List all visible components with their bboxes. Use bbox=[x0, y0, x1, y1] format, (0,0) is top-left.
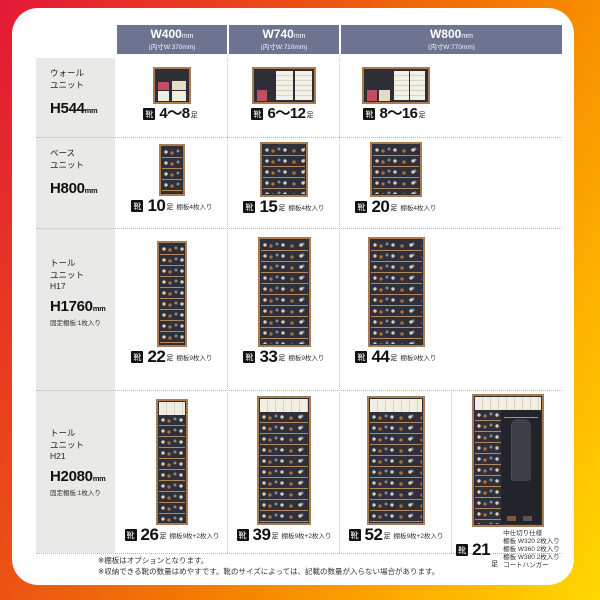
shoe-count: 20 bbox=[371, 200, 389, 214]
shelf-texture bbox=[370, 412, 422, 522]
cabinet-illustration bbox=[258, 237, 311, 347]
shoe-count: 22 bbox=[147, 350, 165, 364]
capacity-label: 靴 26 足 棚板9枚+2枚入り bbox=[125, 528, 220, 542]
shoe-count: 39 bbox=[253, 528, 271, 542]
pairs-unit: 足 bbox=[419, 110, 426, 121]
unit-height: H1760mm bbox=[50, 298, 120, 315]
pairs-unit: 足 bbox=[278, 203, 285, 214]
cabinet-illustration bbox=[368, 237, 425, 347]
shoe-count: 15 bbox=[259, 200, 277, 214]
shelf-texture bbox=[160, 244, 184, 344]
cell-wall-w400: 靴 4〜8 足 bbox=[117, 58, 227, 139]
row-label-tall-unit-h21: トール ユニット H21 H2080mm 固定棚板:1枚入り bbox=[50, 428, 120, 497]
capacity-label: 靴 44 足 棚板9枚入り bbox=[355, 350, 436, 364]
cell-tall21-w800: 靴 52 足 棚板9枚+2枚入り bbox=[341, 392, 451, 553]
shoe-icon: 靴 bbox=[237, 529, 249, 541]
shoe-box-stack bbox=[276, 71, 293, 100]
cabinet-illustration bbox=[156, 399, 188, 525]
inner-width-label: (内寸W:770mm) bbox=[341, 43, 562, 52]
inner-width-label: (内寸W:710mm) bbox=[229, 43, 339, 52]
shoe-icon: 靴 bbox=[355, 201, 367, 213]
shoe-count: 8〜16 bbox=[379, 107, 417, 121]
width-label: W740mm bbox=[229, 28, 339, 43]
shelf-desc: 棚板4枚入り bbox=[400, 202, 436, 212]
cell-base-w400: 靴 10 足 棚板4枚入り bbox=[117, 139, 227, 230]
footnote: ※収納できる靴の数量はめやすです。靴のサイズによっては、記載の数量が入らない場合… bbox=[98, 566, 568, 577]
capacity-label: 靴 20 足 棚板4枚入り bbox=[355, 200, 436, 214]
footnote: ※棚板はオプションとなります。 bbox=[98, 555, 568, 566]
pairs-unit: 足 bbox=[390, 203, 397, 214]
cabinet-illustration bbox=[153, 67, 191, 104]
unit-height: H2080mm bbox=[50, 468, 120, 485]
shoe bbox=[523, 516, 532, 521]
hanger-rail bbox=[504, 417, 538, 418]
shoe-count: 6〜12 bbox=[267, 107, 305, 121]
shelf-texture bbox=[261, 240, 308, 344]
shoe-box-stack bbox=[410, 71, 425, 100]
shoe-box-row bbox=[475, 397, 541, 410]
shoe-box bbox=[367, 90, 377, 101]
pairs-unit: 足 bbox=[307, 110, 314, 121]
pairs-unit: 足 bbox=[159, 531, 166, 542]
cell-wall-w800: 靴 8〜16 足 bbox=[341, 58, 451, 139]
shoe-box-stack bbox=[295, 71, 312, 100]
shelf-texture bbox=[475, 410, 501, 524]
shoe-icon: 靴 bbox=[131, 200, 143, 212]
capacity-label: 靴 6〜12 足 bbox=[251, 107, 316, 121]
coat-compartment bbox=[501, 410, 541, 524]
header-col-w400: W400mm (内寸W:370mm) bbox=[117, 25, 227, 54]
row-label-tall-unit-h17: トール ユニット H17 H1760mm 固定棚板:1枚入り bbox=[50, 258, 120, 327]
shoe-icon: 靴 bbox=[349, 529, 361, 541]
cabinet-illustration bbox=[367, 396, 425, 525]
shoe-icon: 靴 bbox=[143, 108, 155, 120]
column-divider bbox=[227, 58, 228, 553]
shelf-texture bbox=[162, 147, 182, 193]
shelf-desc: 棚板9枚+2枚入り bbox=[169, 530, 219, 540]
column-divider bbox=[339, 58, 340, 553]
shoe-box-row bbox=[260, 399, 308, 412]
cabinet-illustration bbox=[159, 144, 185, 196]
shoe-box-stack bbox=[394, 71, 409, 100]
shelf-texture bbox=[263, 145, 305, 194]
shelf-texture bbox=[260, 412, 308, 522]
shoe-box-row bbox=[159, 402, 185, 415]
shelf-desc: 棚板9枚+2枚入り bbox=[393, 530, 443, 540]
shoe-icon: 靴 bbox=[355, 351, 367, 363]
cell-tall17-w740: 靴 33 足 棚板9枚入り bbox=[229, 230, 339, 390]
capacity-label: 靴 39 足 棚板9枚+2枚入り bbox=[237, 528, 332, 542]
shelf-desc: 棚板9枚入り bbox=[176, 352, 212, 362]
cell-tall21-w800-coat: 靴 21 足 中仕切り仕様 棚板 W320 2枚入り 棚板 W360 2枚入り … bbox=[453, 392, 563, 553]
cell-tall21-w400: 靴 26 足 棚板9枚+2枚入り bbox=[117, 392, 227, 553]
pairs-unit: 足 bbox=[390, 353, 397, 364]
capacity-label: 靴 4〜8 足 bbox=[143, 107, 200, 121]
shoe-count: 33 bbox=[259, 350, 277, 364]
row-divider bbox=[36, 390, 562, 391]
shelf-desc: 棚板9枚+2枚入り bbox=[281, 530, 331, 540]
cell-base-w740: 靴 15 足 棚板4枚入り bbox=[229, 139, 339, 230]
shoe-count: 4〜8 bbox=[159, 107, 189, 121]
capacity-label: 靴 33 足 棚板9枚入り bbox=[243, 350, 324, 364]
shoe-count: 52 bbox=[365, 528, 383, 542]
shoe-box bbox=[158, 91, 169, 101]
capacity-label: 靴 52 足 棚板9枚+2枚入り bbox=[349, 528, 444, 542]
shoe-icon: 靴 bbox=[125, 529, 137, 541]
shoe-box bbox=[172, 81, 186, 90]
pairs-unit: 足 bbox=[271, 531, 278, 542]
fixed-shelf-note: 固定棚板:1枚入り bbox=[50, 487, 120, 497]
unit-height: H544mm bbox=[50, 100, 120, 117]
cell-tall17-w400: 靴 22 足 棚板9枚入り bbox=[117, 230, 227, 390]
shelf-desc: 棚板9枚入り bbox=[400, 352, 436, 362]
footnotes: ※棚板はオプションとなります。 ※収納できる靴の数量はめやすです。靴のサイズによ… bbox=[98, 555, 568, 577]
shelf-desc: 棚板4枚入り bbox=[288, 202, 324, 212]
fixed-shelf-note: 固定棚板:1枚入り bbox=[50, 317, 120, 327]
shelf-texture bbox=[371, 240, 422, 344]
pairs-unit: 足 bbox=[191, 110, 198, 121]
inner-width-label: (内寸W:370mm) bbox=[117, 43, 227, 52]
shoe-count: 44 bbox=[371, 350, 389, 364]
shoe-box bbox=[257, 90, 267, 101]
capacity-label: 靴 22 足 棚板9枚入り bbox=[131, 350, 212, 364]
pairs-unit: 足 bbox=[383, 531, 390, 542]
cell-tall21-w740: 靴 39 足 棚板9枚+2枚入り bbox=[229, 392, 339, 553]
shoe-icon: 靴 bbox=[243, 201, 255, 213]
capacity-label: 靴 8〜16 足 bbox=[363, 107, 428, 121]
cabinet-illustration bbox=[362, 67, 430, 104]
capacity-label: 靴 10 足 棚板4枚入り bbox=[131, 199, 212, 213]
hanging-coat bbox=[511, 419, 531, 481]
cell-tall17-w800: 靴 44 足 棚板9枚入り bbox=[341, 230, 451, 390]
shoe-count: 26 bbox=[141, 528, 159, 542]
shoe-box bbox=[158, 82, 169, 90]
shelf-texture bbox=[159, 415, 185, 522]
cabinet-illustration bbox=[157, 241, 187, 347]
row-label-wall-unit: ウォール ユニット H544mm bbox=[50, 68, 120, 117]
shoe-count: 10 bbox=[147, 199, 165, 213]
cabinet-illustration bbox=[252, 67, 316, 104]
pairs-unit: 足 bbox=[278, 353, 285, 364]
header-col-w740: W740mm (内寸W:710mm) bbox=[229, 25, 339, 54]
cell-base-w800: 靴 20 足 棚板4枚入り bbox=[341, 139, 451, 230]
cabinet-illustration bbox=[260, 142, 308, 197]
cell-wall-w740: 靴 6〜12 足 bbox=[229, 58, 339, 139]
capacity-label: 靴 15 足 棚板4枚入り bbox=[243, 200, 324, 214]
width-label: W800mm bbox=[341, 28, 562, 43]
cabinet-illustration bbox=[257, 396, 311, 525]
shoe-icon: 靴 bbox=[131, 351, 143, 363]
header-col-w800: W800mm (内寸W:770mm) bbox=[341, 25, 562, 54]
shoe-box bbox=[379, 90, 390, 101]
cabinet-illustration-coat bbox=[472, 394, 544, 527]
unit-height: H800mm bbox=[50, 180, 120, 197]
shelf-desc: 棚板4枚入り bbox=[176, 201, 212, 211]
width-label: W400mm bbox=[117, 28, 227, 43]
shoe-box bbox=[172, 91, 186, 101]
shoe bbox=[507, 516, 516, 521]
shoe-icon: 靴 bbox=[243, 351, 255, 363]
shelf-desc: 棚板9枚入り bbox=[288, 352, 324, 362]
pairs-unit: 足 bbox=[166, 353, 173, 364]
shoe-icon: 靴 bbox=[251, 108, 263, 120]
pairs-unit: 足 bbox=[166, 202, 173, 213]
column-divider bbox=[451, 392, 452, 553]
shelf-texture bbox=[373, 145, 419, 194]
shoe-icon: 靴 bbox=[363, 108, 375, 120]
row-label-base-unit: ベース ユニット H800mm bbox=[50, 148, 120, 197]
spec-sheet-card: W400mm (内寸W:370mm) W740mm (内寸W:710mm) W8… bbox=[12, 8, 574, 585]
shoe-box-row bbox=[370, 399, 422, 412]
cabinet-illustration bbox=[370, 142, 422, 197]
